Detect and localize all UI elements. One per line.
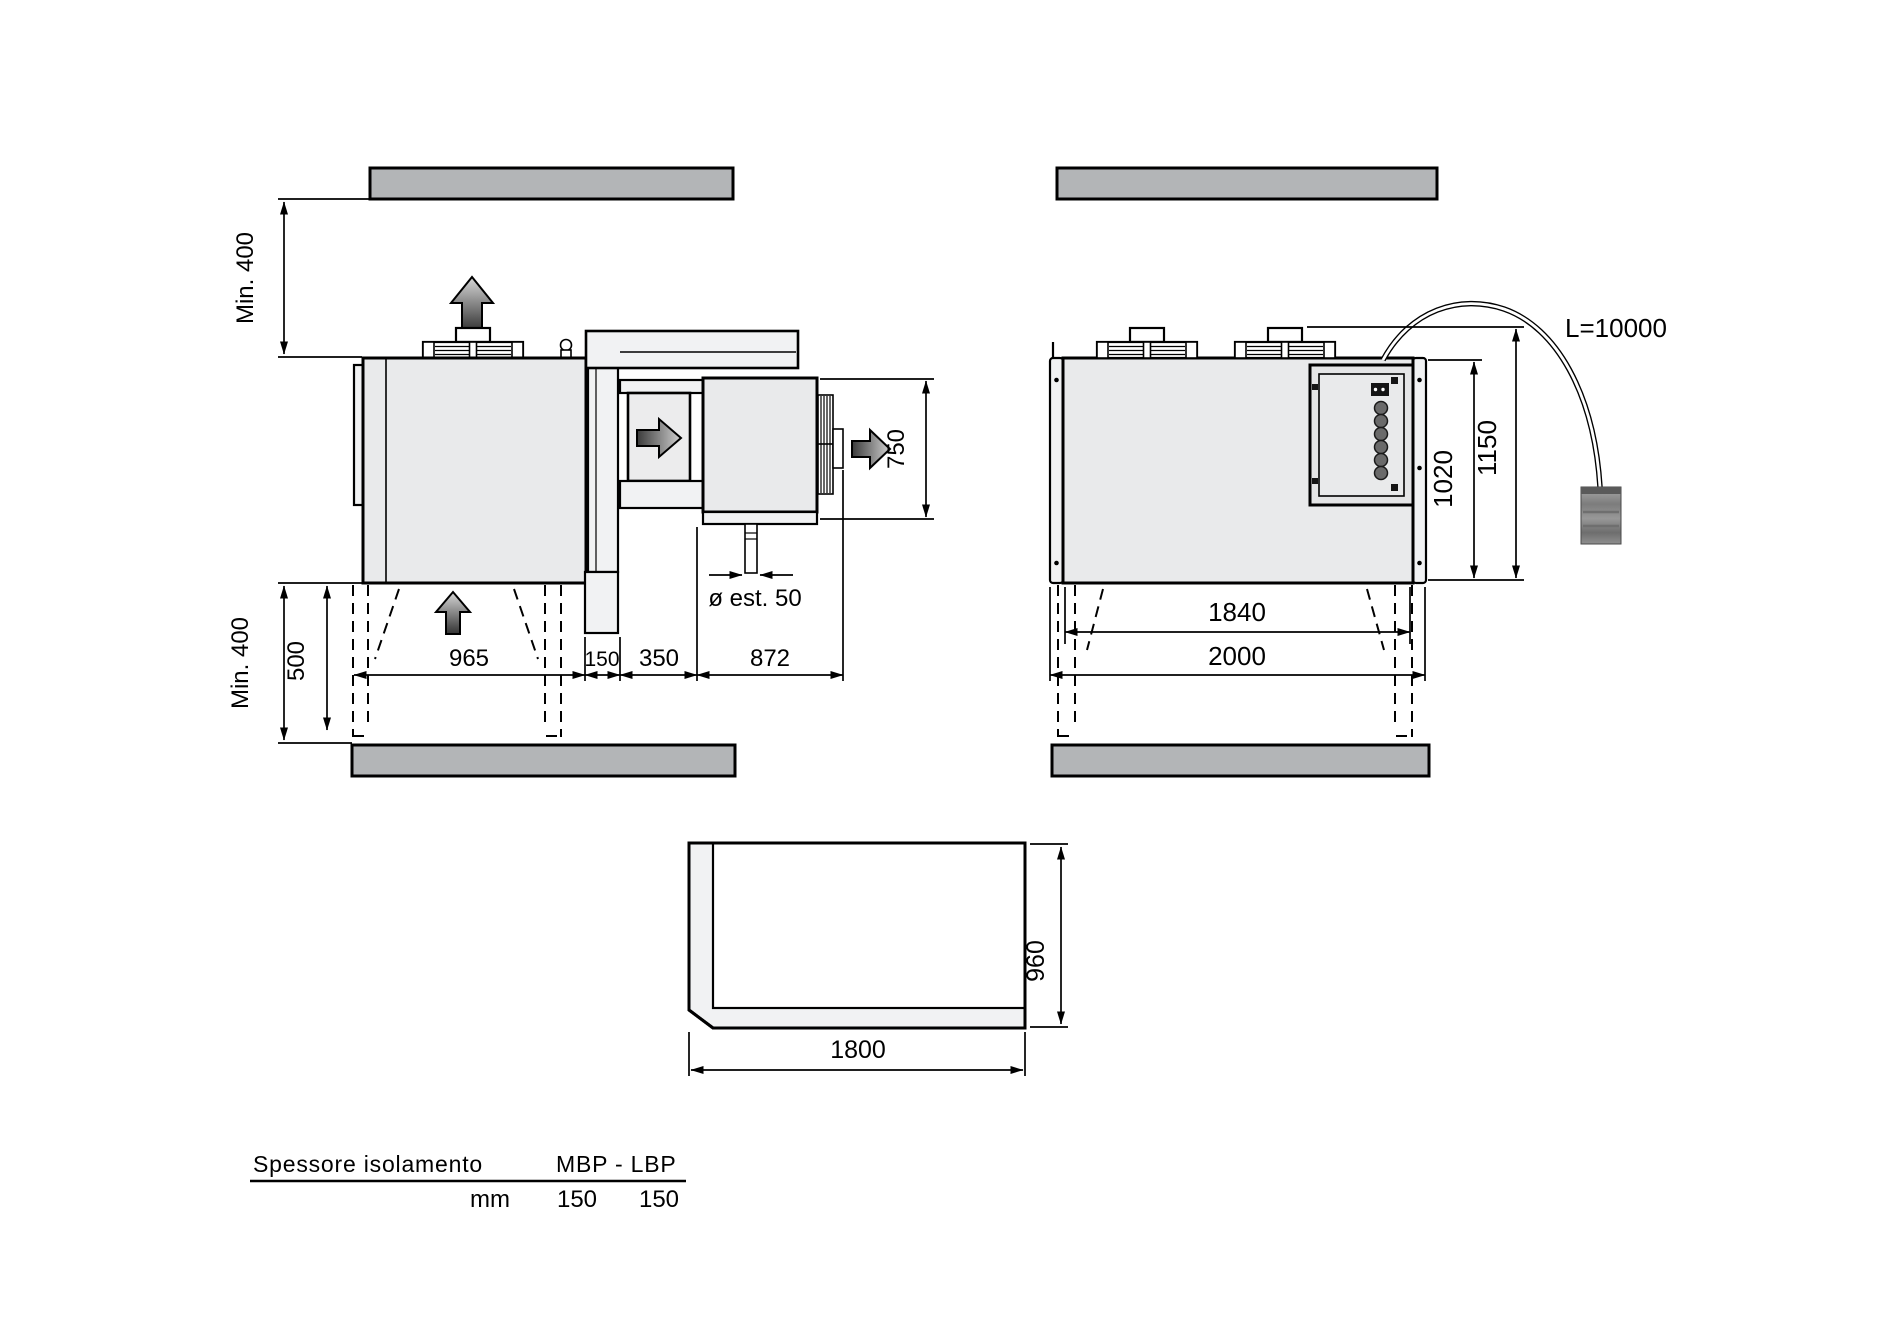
dim-350-label: 350 (639, 645, 679, 672)
fan-grille-icon (1097, 328, 1197, 358)
wall-panel (585, 366, 618, 633)
clearance-top-label: Min. 400 (232, 232, 259, 324)
screw-icon (1312, 478, 1318, 484)
dim-drain-diameter: ø est. 50 (708, 575, 801, 612)
panel-button-icon (1375, 467, 1388, 480)
ceiling-slab (370, 168, 733, 199)
dim-750-label: 750 (883, 429, 910, 469)
dim-965-label: 965 (449, 645, 489, 672)
airflow-up-exhaust-icon (451, 277, 493, 331)
panel-button-icon (1375, 454, 1388, 467)
dim-872-label: 872 (750, 645, 790, 672)
dim-1800: 1800 (689, 1032, 1025, 1076)
fan-grille-icon (1235, 328, 1335, 358)
drain-pipe (745, 524, 757, 573)
screw-icon (1417, 561, 1422, 566)
screw-icon (1054, 378, 1059, 383)
screw-icon (1391, 484, 1398, 491)
screw-icon (1054, 561, 1059, 566)
panel-button-icon (1375, 415, 1388, 428)
dim-2000-label: 2000 (1208, 641, 1266, 671)
floor-slab (1052, 745, 1429, 776)
dim-1800-label: 1800 (830, 1036, 886, 1064)
dim-clearance-top: Min. 400 (232, 199, 370, 357)
table-mbp-value: 150 (557, 1186, 597, 1213)
screw-icon (1417, 466, 1422, 471)
panel-button-icon (1375, 428, 1388, 441)
condensing-unit (703, 378, 843, 524)
front-view: L=10000 1020 1150 (1050, 168, 1667, 776)
table-lbp-value: 150 (639, 1186, 679, 1213)
screw-icon (1391, 377, 1398, 384)
fan-grille-icon (423, 328, 523, 358)
dim-960-label: 960 (1022, 940, 1050, 982)
plan-view: 960 1800 (689, 843, 1068, 1076)
mounting-bracket (586, 331, 798, 368)
relief-valve-icon (561, 340, 572, 359)
left-flange (1050, 358, 1063, 583)
drain-diameter-label: ø est. 50 (708, 585, 801, 612)
side-view: Min. 400 (227, 168, 934, 776)
screw-icon (1312, 384, 1318, 390)
ceiling-slab (1057, 168, 1437, 199)
dim-960: 960 (1022, 844, 1068, 1027)
dim-500-label: 500 (283, 641, 310, 681)
dim-1840-label: 1840 (1208, 597, 1266, 627)
floor-slab (352, 745, 735, 776)
installation-drawing: Min. 400 (0, 0, 1890, 1336)
dim-1150-label: 1150 (1472, 420, 1502, 476)
screw-icon (1417, 378, 1422, 383)
insulation-table: Spessore isolamento MBP - LBP mm 150 150 (250, 1151, 686, 1213)
panel-button-icon (1375, 402, 1388, 415)
dim-500: 500 (283, 586, 327, 730)
right-flange (1413, 358, 1426, 583)
table-unit-label: mm (470, 1186, 510, 1213)
airflow-up-intake-icon (436, 592, 470, 634)
panel-button-icon (1375, 441, 1388, 454)
display-icon (1371, 383, 1389, 396)
evaporator-body (354, 358, 586, 583)
technical-drawing-page: Min. 400 (0, 0, 1890, 1336)
power-plug-icon (1581, 487, 1621, 544)
table-header-right: MBP - LBP (556, 1151, 677, 1177)
cable-length-label: L=10000 (1565, 313, 1667, 343)
control-panel (1310, 365, 1413, 505)
dim-1020-label: 1020 (1428, 450, 1458, 508)
clearance-bottom-label: Min. 400 (227, 617, 254, 709)
table-header-left: Spessore isolamento (253, 1151, 483, 1177)
dim-1840: 1840 (1065, 587, 1410, 644)
dim-150-label: 150 (584, 648, 619, 671)
